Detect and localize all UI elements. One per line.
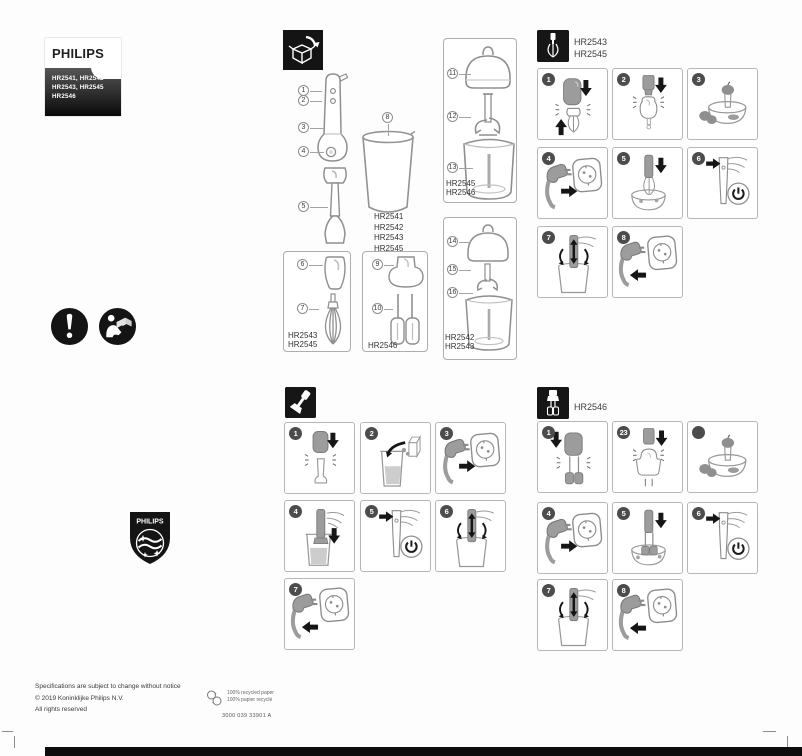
step-panel: 6 xyxy=(435,500,506,572)
callout-2: 2 xyxy=(298,95,309,106)
read-manual-icon xyxy=(98,307,137,346)
callout-3: 3 xyxy=(298,122,309,133)
callout-11: 11 xyxy=(447,68,458,79)
whisk-icon xyxy=(537,30,569,62)
model-list-panel: HR2541, HR2542 HR2543, HR2545 HR2546 xyxy=(45,68,121,116)
step-number-badge: 5 xyxy=(365,505,378,518)
step-panel: 4 xyxy=(537,147,608,219)
callout-10: 10 xyxy=(372,303,383,314)
part-chopper-blade-large-drawing xyxy=(468,92,508,138)
document-code: 3000 039 33901 A xyxy=(222,713,271,719)
step-number-badge: 4 xyxy=(289,505,302,518)
step-number-badge: 8 xyxy=(617,584,630,597)
part-chopper-blade-small-drawing xyxy=(470,263,506,293)
step-panel: 8 xyxy=(612,579,683,651)
callout-15: 15 xyxy=(447,264,458,275)
callout-13: 13 xyxy=(447,162,458,173)
step-panel: 6 xyxy=(687,147,758,219)
callout-14: 14 xyxy=(447,236,458,247)
step-panel: 3 xyxy=(435,422,506,494)
step-number-badge: 7 xyxy=(289,583,302,596)
step-panel: 6 xyxy=(687,502,758,574)
part-beater-coupling-drawing xyxy=(388,254,424,290)
step-panel xyxy=(687,421,758,493)
part-chopper-lid-small-drawing xyxy=(464,222,512,264)
step-number-badge: 7 xyxy=(542,584,555,597)
callout-12: 12 xyxy=(447,111,458,122)
step-panel: 5 xyxy=(360,500,431,572)
step-number-badge: 6 xyxy=(692,507,705,520)
step-panel: 7 xyxy=(284,578,355,650)
step-panel: 23 xyxy=(612,421,683,493)
step-number-badge: 4 xyxy=(542,507,555,520)
part-blender-bar-drawing xyxy=(318,166,352,246)
step-number-badge: 3 xyxy=(440,427,453,440)
shield-wordmark: PHILIPS xyxy=(136,519,164,526)
step-panel: 8 xyxy=(612,226,683,298)
step-panel: 3 xyxy=(687,68,758,140)
chopper-small-model-list: HR2542 HR2543 xyxy=(445,333,474,351)
philips-shield-logo: PHILIPS xyxy=(128,511,172,566)
unpack-box-icon xyxy=(283,30,323,70)
part-chopper-lid-large-drawing xyxy=(462,44,514,90)
chopper-large-model-list: HR2545 HR2546 xyxy=(446,179,475,197)
step-panel: 7 xyxy=(537,226,608,298)
blender-bar-icon xyxy=(285,387,316,418)
callout-7: 7 xyxy=(297,303,308,314)
callout-16: 16 xyxy=(447,287,458,298)
model-line: HR2546 xyxy=(52,92,104,101)
step-panel: 1 xyxy=(537,421,608,493)
step-panel: 4 xyxy=(537,502,608,574)
step-number-badge: 7 xyxy=(542,231,555,244)
footer-line-1: Specifications are subject to change wit… xyxy=(35,681,181,693)
step-number-badge: 5 xyxy=(617,507,630,520)
callout-6: 6 xyxy=(297,259,308,270)
part-motor-unit-drawing xyxy=(314,72,352,168)
leaflet-page: PHILIPS HR2541, HR2542 HR2543, HR2545 HR… xyxy=(0,0,802,756)
footer-line-2: © 2019 Koninklijke Philips N.V. xyxy=(35,693,181,705)
whisk-section-models: HR2543 HR2545 xyxy=(574,36,607,60)
callout-9: 9 xyxy=(372,259,383,270)
step-panel: 5 xyxy=(612,502,683,574)
step-panel: 1 xyxy=(284,422,355,494)
footer-legal-text: Specifications are subject to change wit… xyxy=(35,681,181,716)
beater-box-model-list: HR2546 xyxy=(368,341,397,350)
footer-line-3: All rights reserved xyxy=(35,704,181,716)
step-number-badge: 5 xyxy=(617,152,630,165)
step-number-badge: 4 xyxy=(542,152,555,165)
callout-4: 4 xyxy=(298,146,309,157)
part-beaker-drawing xyxy=(360,128,416,214)
step-number-badge: 6 xyxy=(692,152,705,165)
crop-mark xyxy=(763,731,776,732)
part-whisk-coupling-drawing xyxy=(322,256,348,290)
model-line: HR2543, HR2545 xyxy=(52,83,104,92)
beaker-model-list: HR2541 HR2542 HR2543 HR2545 xyxy=(374,212,403,254)
part-whisk-drawing xyxy=(318,292,348,348)
step-panel: 2 xyxy=(612,68,683,140)
recycling-circles-icon xyxy=(206,690,224,706)
callout-5: 5 xyxy=(298,201,309,212)
step-number-badge: 1 xyxy=(542,426,555,439)
crop-mark xyxy=(2,731,13,732)
model-line: HR2541, HR2542 xyxy=(52,74,104,83)
double-beater-icon xyxy=(537,387,569,419)
print-edge-bar xyxy=(45,747,802,756)
step-number-badge: 1 xyxy=(289,427,302,440)
crop-mark xyxy=(14,736,15,748)
step-number-badge: 8 xyxy=(617,231,630,244)
step-panel: 5 xyxy=(612,147,683,219)
step-number-badge: 1 xyxy=(542,73,555,86)
recycled-paper-note: 100% recycled paper 100% papier recyclé xyxy=(227,690,274,703)
step-number-badge: 23 xyxy=(617,426,630,439)
beater-section-models: HR2546 xyxy=(574,401,607,413)
step-number-badge: 6 xyxy=(440,505,453,518)
step-panel: 1 xyxy=(537,68,608,140)
whisk-box-model-list: HR2543 HR2545 xyxy=(288,331,317,349)
step-panel: 4 xyxy=(284,500,355,572)
mandatory-action-icon xyxy=(50,307,89,346)
callout-8: 8 xyxy=(382,112,393,123)
step-panel: 2 xyxy=(360,422,431,494)
step-number-badge: 2 xyxy=(365,427,378,440)
step-number-badge: 3 xyxy=(692,73,705,86)
step-number-badge xyxy=(692,426,705,439)
philips-logo-box: PHILIPS HR2541, HR2542 HR2543, HR2545 HR… xyxy=(45,38,121,116)
step-number-badge: 2 xyxy=(617,73,630,86)
philips-wordmark: PHILIPS xyxy=(52,46,104,61)
step-panel: 7 xyxy=(537,579,608,651)
